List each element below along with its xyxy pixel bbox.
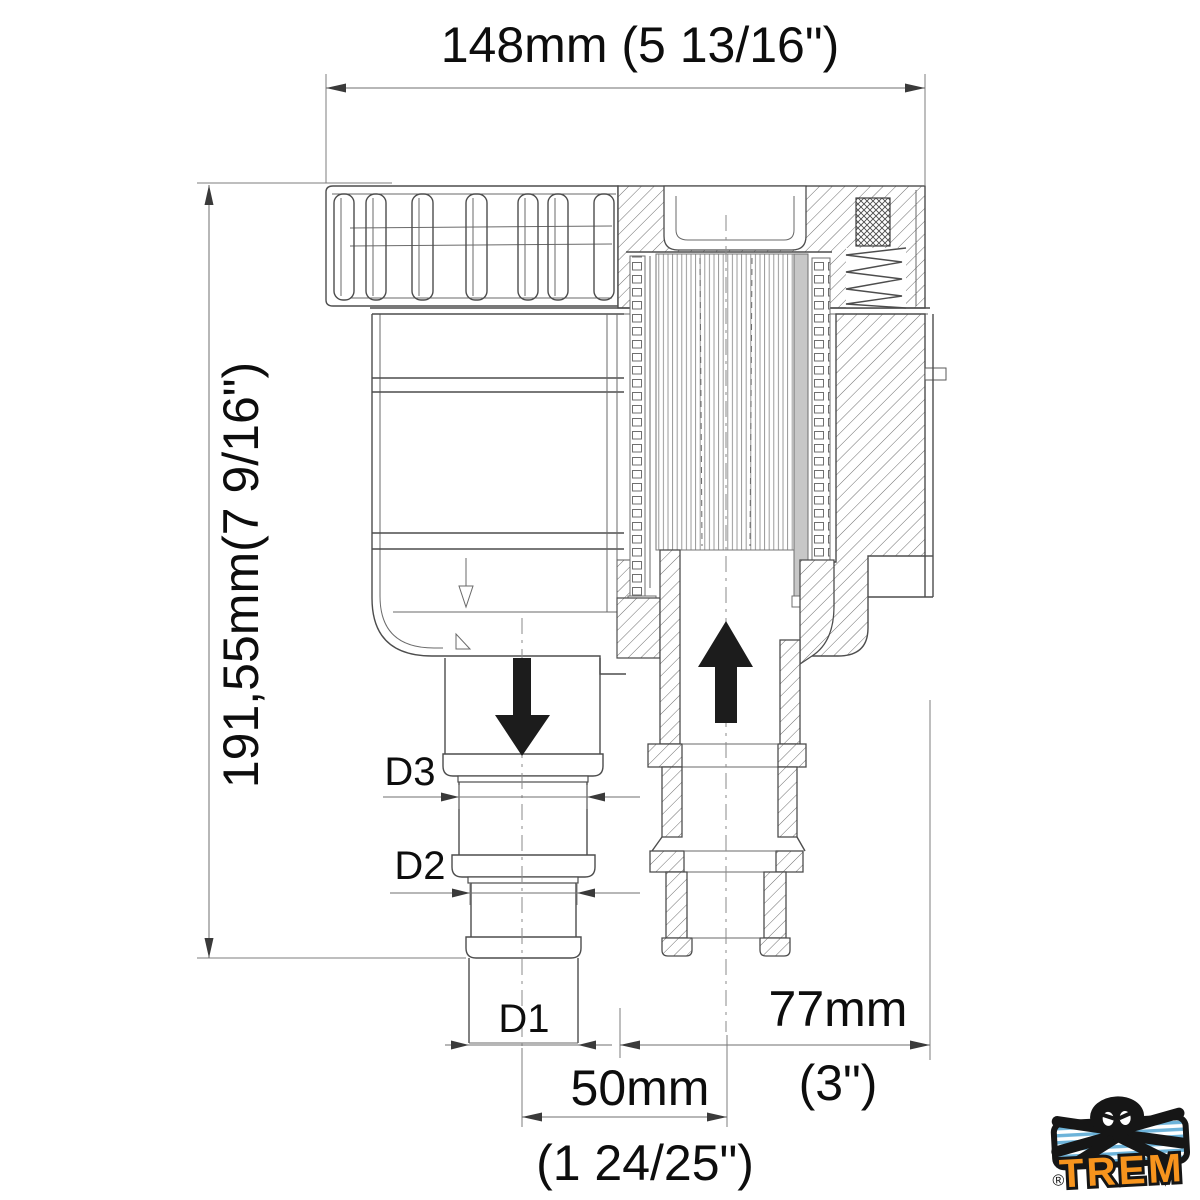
filter-edge-shaded xyxy=(794,254,808,596)
cap-seal-gasket xyxy=(856,198,890,246)
brand-text: TREM xyxy=(1058,1146,1185,1196)
filter-basket xyxy=(626,252,832,608)
dim-d2-label: D2 xyxy=(394,844,445,888)
strainer-body-left xyxy=(372,314,633,674)
mount-step xyxy=(925,368,946,380)
dim-d3-label: D3 xyxy=(384,750,435,794)
dim-width-label: 148mm (5 13/16") xyxy=(441,17,840,73)
registered-mark: ® xyxy=(1052,1172,1065,1190)
dim-offset-in-label: (1 24/25") xyxy=(536,1135,754,1191)
dim-height-label: 191,55mm(7 9/16") xyxy=(213,362,269,788)
basket-slot-column-left xyxy=(630,256,645,598)
basket-slot-column-right xyxy=(812,258,830,590)
dim-offset-mm-label: 50mm xyxy=(571,1060,710,1116)
strainer-diagram: 148mm (5 13/16") 191,55mm(7 9/16") D3 D2… xyxy=(0,0,1200,1200)
filter-mesh xyxy=(656,254,794,550)
technical-drawing-page: 148mm (5 13/16") 191,55mm(7 9/16") D3 D2… xyxy=(0,0,1200,1200)
dim-inlet-in-label: (3") xyxy=(799,1055,878,1111)
cap-threads xyxy=(846,248,906,308)
dim-d1-label: D1 xyxy=(498,997,549,1041)
dim-inlet-mm-label: 77mm xyxy=(769,981,908,1037)
